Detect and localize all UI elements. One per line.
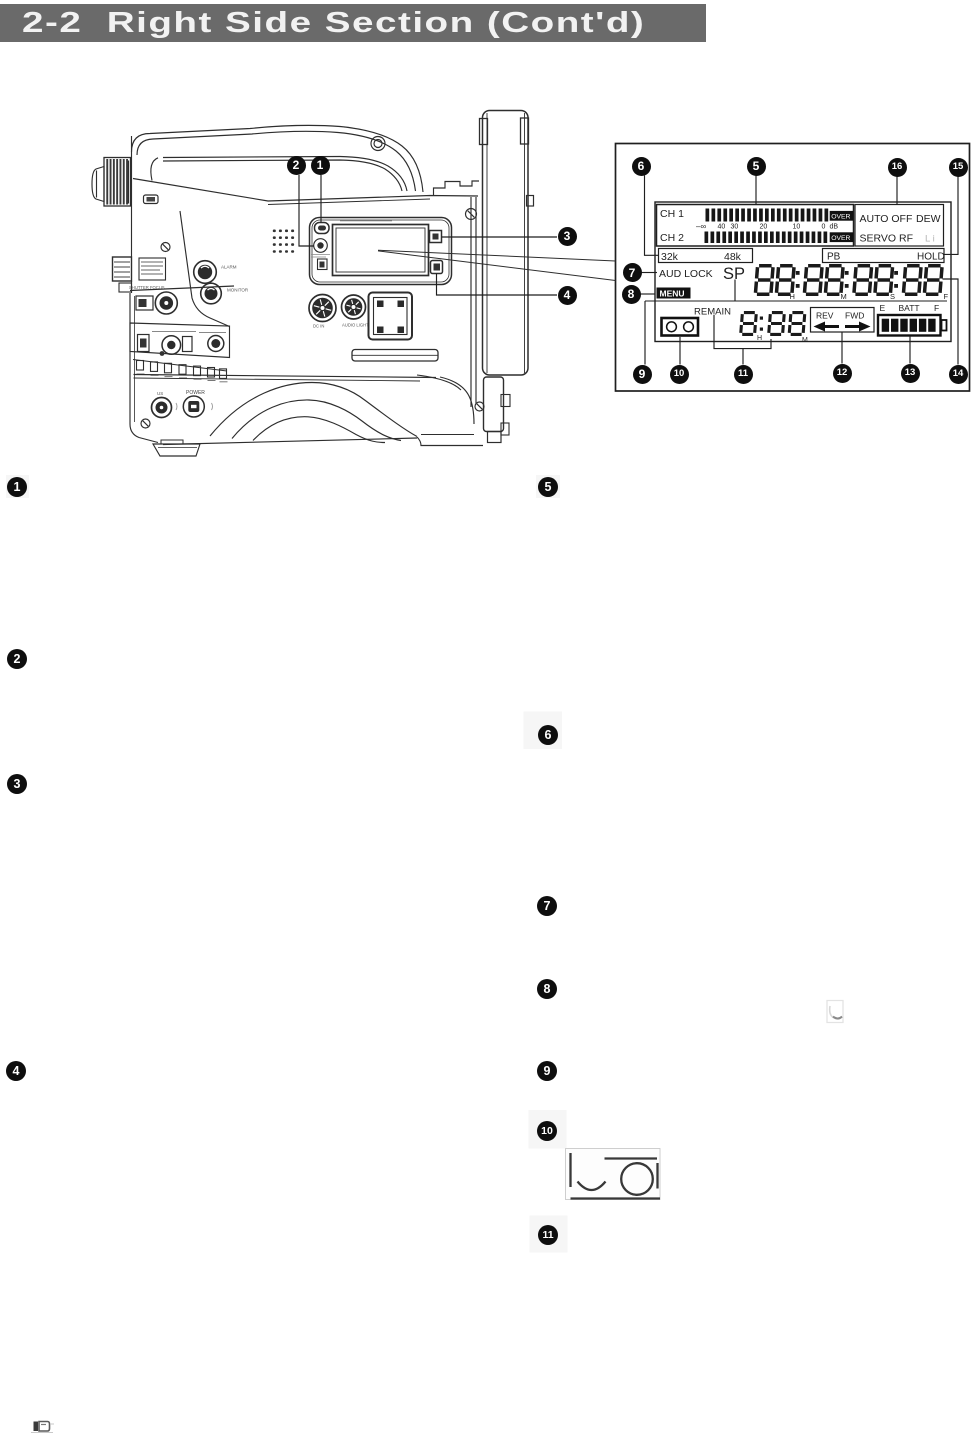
svg-text:H: H [757, 335, 762, 342]
svg-text:10: 10 [793, 224, 801, 231]
svg-text:SP: SP [723, 265, 745, 283]
svg-text:MONITOR: MONITOR [227, 288, 249, 293]
svg-text:BATT: BATT [899, 303, 920, 313]
svg-text:–∞: –∞ [696, 222, 706, 231]
svg-text:M: M [841, 292, 847, 301]
svg-text:AUTO OFF: AUTO OFF [860, 213, 913, 225]
svg-text:dB: dB [830, 224, 839, 231]
svg-text:REV: REV [816, 311, 834, 321]
svg-text:E: E [880, 303, 886, 313]
svg-text:US: US [157, 391, 163, 396]
svg-text:F: F [944, 292, 949, 301]
svg-text:MENU: MENU [660, 288, 685, 298]
svg-text:SHUTTER FOCUS: SHUTTER FOCUS [129, 285, 165, 290]
svg-text:HOLD: HOLD [917, 252, 945, 263]
svg-text:DC IN: DC IN [313, 324, 324, 329]
svg-text:32k: 32k [661, 251, 679, 263]
svg-text:20: 20 [760, 224, 768, 231]
svg-text:AUDIO LIGHT: AUDIO LIGHT [342, 323, 369, 328]
svg-text:POWER: POWER [186, 390, 205, 396]
svg-text:CH 1: CH 1 [660, 208, 684, 220]
svg-text:30: 30 [731, 224, 739, 231]
svg-text:AUD LOCK: AUD LOCK [659, 268, 713, 280]
svg-text:F: F [934, 303, 939, 313]
svg-text:ALARM: ALARM [221, 265, 237, 270]
svg-text:FWD: FWD [845, 311, 864, 321]
svg-text:M: M [802, 337, 808, 344]
svg-text:OVER: OVER [831, 235, 850, 242]
svg-text:PB: PB [827, 252, 841, 263]
svg-text:DEW: DEW [916, 213, 941, 225]
svg-text:SERVO RF: SERVO RF [860, 233, 913, 245]
svg-text:OVER: OVER [831, 214, 850, 221]
svg-text:40: 40 [718, 224, 726, 231]
svg-text:48k: 48k [724, 251, 742, 263]
svg-text:0: 0 [822, 224, 826, 231]
svg-text:CH 2: CH 2 [660, 232, 684, 244]
svg-text:H: H [790, 292, 795, 301]
svg-text:L i: L i [925, 234, 935, 245]
svg-text:REMAIN: REMAIN [694, 307, 731, 318]
svg-text:S: S [890, 292, 895, 301]
